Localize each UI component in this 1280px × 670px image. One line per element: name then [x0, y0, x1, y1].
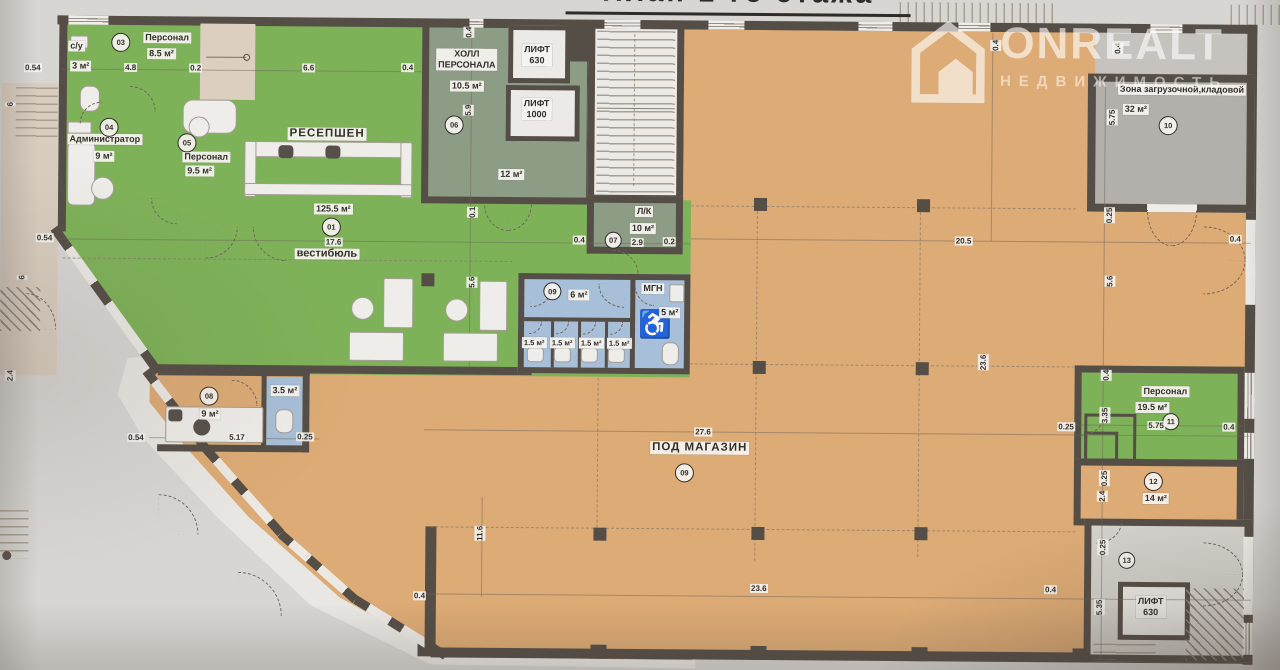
exterior-stairs-top-right	[1230, 5, 1280, 25]
room-number: 08	[199, 387, 218, 406]
lift-name: ЛИФТ	[1138, 596, 1164, 607]
column	[753, 361, 766, 374]
dimension-label: 0.25	[1104, 208, 1115, 224]
room-area: 8.5 м²	[147, 48, 176, 59]
window	[858, 22, 892, 31]
room-area: 6 м²	[568, 289, 589, 300]
toilet	[554, 347, 571, 362]
entrance-opening-east-south	[1243, 537, 1254, 615]
lift-label: ЛИФТ 630	[1136, 596, 1166, 618]
toilet	[527, 347, 544, 362]
admin-desk	[67, 141, 96, 205]
dimension-label: 0.25	[1057, 422, 1075, 431]
reception-equipment	[278, 145, 293, 158]
loading-dock-exterior	[1095, 32, 1248, 77]
dimension-label: 0.2	[189, 63, 202, 72]
floor-plan: План 1-го этажа	[0, 0, 1280, 670]
column	[916, 362, 929, 375]
dimension-label: 0.25	[296, 432, 314, 441]
window	[1150, 24, 1182, 33]
stall-area: 1.5 м²	[550, 337, 575, 348]
coffee-table	[445, 298, 468, 321]
dimension-label: 0.1	[467, 207, 478, 218]
dimension-label: 0.25	[1099, 471, 1110, 487]
dimension-label: 0.54	[127, 433, 145, 442]
stair-arrow-origin	[243, 54, 250, 61]
dimension-label: 5.6	[1104, 276, 1115, 287]
dimension-label: 6	[16, 275, 27, 280]
toilet	[662, 342, 679, 365]
dimension-label: 5.6	[466, 277, 477, 288]
room-area: 14 м²	[1143, 493, 1169, 504]
room-number: 03	[111, 33, 130, 52]
room-number: 09	[675, 463, 694, 482]
dimension-label: 4.8	[124, 63, 137, 72]
kettle	[168, 409, 182, 421]
dimension-label: 0.4	[573, 235, 586, 244]
dimension-label: 0.4	[1112, 43, 1123, 54]
room-label: Персонал	[182, 151, 230, 162]
coffee-table	[351, 297, 374, 320]
lift-capacity: 630	[1138, 607, 1164, 618]
room-label: Зона загрузочной,кладовой	[1118, 84, 1246, 96]
room-area-su: 3 м²	[70, 61, 91, 72]
room-area: 125.5 м²	[314, 203, 353, 214]
room-area: 9 м²	[93, 151, 114, 162]
room-number: 04	[100, 118, 119, 137]
window	[1244, 373, 1254, 419]
room-label-su: с/у	[68, 41, 85, 52]
dimension-label: 6	[5, 102, 16, 107]
room-number: 10	[1159, 116, 1178, 135]
page-title: План 1-го этажа	[566, 0, 911, 17]
kitchen-sink	[193, 418, 210, 435]
toilet	[275, 409, 293, 433]
room-label-line2: ПЕРСОНАЛА	[438, 59, 496, 70]
dimension-label: 0.4	[413, 591, 426, 600]
stall-area: 1.5 м²	[522, 337, 547, 348]
sofa	[443, 332, 498, 361]
room-area: 3.5 м²	[271, 385, 300, 396]
stall-area: 1.5 м²	[579, 338, 604, 349]
lift-capacity: 630	[524, 55, 550, 66]
door-arc	[238, 572, 282, 616]
room-number: 05	[177, 133, 196, 152]
room-number: 06	[445, 115, 464, 134]
exterior-stairs-top	[899, 2, 1057, 24]
lift-shaft	[568, 25, 592, 61]
stall-area: 1.5 м²	[607, 338, 632, 349]
dimension-label: 0.25	[1097, 540, 1108, 556]
room-number: 07	[605, 232, 622, 249]
dimension-label: 3.35	[1099, 408, 1110, 424]
dimension-label: 0.4	[463, 27, 474, 38]
room-label-staff-hall: ХОЛЛ ПЕРСОНАЛА	[436, 48, 498, 70]
dimension-label: 0.4	[1101, 370, 1112, 381]
room-number: 12	[1144, 472, 1163, 491]
room-area: 9.5 м²	[185, 165, 214, 176]
lift-label: ЛИФТ 1000	[522, 98, 552, 120]
exterior-ramp-steps	[16, 87, 58, 139]
entrance-opening-east	[1245, 220, 1256, 305]
chair	[91, 177, 114, 200]
column	[751, 527, 764, 540]
dimension-label: 0.54	[24, 63, 42, 72]
dimension-label: 27.6	[694, 427, 712, 436]
dimension-label: 0.4	[401, 63, 414, 72]
armchair	[383, 278, 413, 328]
wall-room08-north	[158, 368, 310, 376]
room-label-mgn: МГН	[641, 283, 664, 294]
dimension-label: 0.4	[1229, 235, 1242, 244]
pilaster	[911, 647, 927, 661]
dimension-label: 0.4	[1222, 423, 1235, 432]
room-label: вестибюль	[295, 248, 360, 260]
sink	[669, 284, 684, 302]
dimension-label: 0.54	[36, 233, 54, 242]
dimension-label: 6.6	[302, 63, 315, 72]
wall-west	[58, 15, 68, 231]
toilet	[608, 348, 625, 363]
dimension-label: 0.2	[663, 237, 676, 246]
room-area: 19.5 м²	[1135, 402, 1169, 413]
room-number: 13	[1118, 552, 1135, 569]
lift-capacity: 1000	[524, 109, 550, 120]
room-area: 5 м²	[659, 307, 680, 318]
dimension-label: 23.6	[750, 584, 768, 593]
dimension-label: 0.4	[1044, 585, 1057, 594]
wall-fin-west	[425, 526, 437, 651]
column	[754, 198, 767, 211]
room-number: 09	[543, 282, 561, 300]
dimension-label: 11.6	[474, 526, 485, 541]
door-arc	[158, 494, 198, 534]
dimension-label: 5.75	[1147, 421, 1165, 430]
room-area: 10.5 м²	[450, 80, 484, 91]
dimension-label: 2.4	[5, 370, 16, 381]
stairwell-steps	[596, 31, 675, 194]
reception-equipment	[325, 146, 340, 159]
dimension-label: 20.5	[955, 236, 973, 245]
stairs-bottom	[1093, 644, 1155, 660]
pilaster	[750, 646, 766, 660]
room-label-shop: ПОД МАГАЗИН	[650, 441, 749, 455]
lift-name: ЛИФТ	[524, 44, 550, 55]
wall-mgn-divider	[630, 278, 636, 370]
room-label: Л/К	[635, 206, 653, 217]
dimension-label: 5.17	[228, 433, 246, 442]
room-area: 10 м²	[630, 223, 656, 234]
room-label: Персонал	[1142, 386, 1190, 397]
dimension-label: 2.9	[631, 238, 644, 247]
window	[68, 16, 108, 25]
column	[593, 528, 606, 541]
dimension-label: 23.6	[978, 355, 989, 371]
wall-room08-south	[157, 444, 309, 452]
sofa	[349, 332, 404, 361]
lift-label: ЛИФТ 630	[522, 44, 552, 66]
column	[917, 199, 930, 212]
dimension-label: 0.4	[990, 40, 1001, 51]
room-area: 9 м²	[199, 409, 220, 420]
room-label-line1: ХОЛЛ	[438, 48, 496, 59]
dimension-label: 2.4	[1097, 491, 1108, 502]
column	[914, 527, 927, 540]
armchair	[479, 281, 507, 331]
pilaster	[590, 645, 606, 659]
room-area: 12 м²	[498, 169, 524, 180]
reception-counter-front	[244, 183, 412, 196]
window	[604, 20, 640, 29]
column	[421, 273, 434, 286]
pilaster	[1072, 648, 1088, 662]
dimension-label: 5.75	[1107, 110, 1118, 126]
lift-name: ЛИФТ	[524, 98, 550, 109]
site-marker	[2, 551, 11, 560]
room-label: Персонал	[143, 32, 191, 43]
toilet	[581, 348, 598, 363]
dimension-label: 17.6	[325, 238, 343, 247]
duct-shaft-inner	[1084, 431, 1118, 461]
window	[708, 21, 744, 30]
room-number: 01	[322, 217, 341, 236]
room-area: 32 м²	[1123, 104, 1149, 115]
window	[1243, 623, 1253, 655]
window	[958, 22, 990, 31]
stairs-top-left	[200, 24, 256, 100]
dimension-label: 5.35	[1094, 600, 1105, 616]
reception-label: РЕСЕПШЕН	[288, 127, 367, 141]
dimension-label: 5.9	[463, 105, 474, 116]
floor-plan-photo: План 1-го этажа	[0, 0, 1280, 670]
